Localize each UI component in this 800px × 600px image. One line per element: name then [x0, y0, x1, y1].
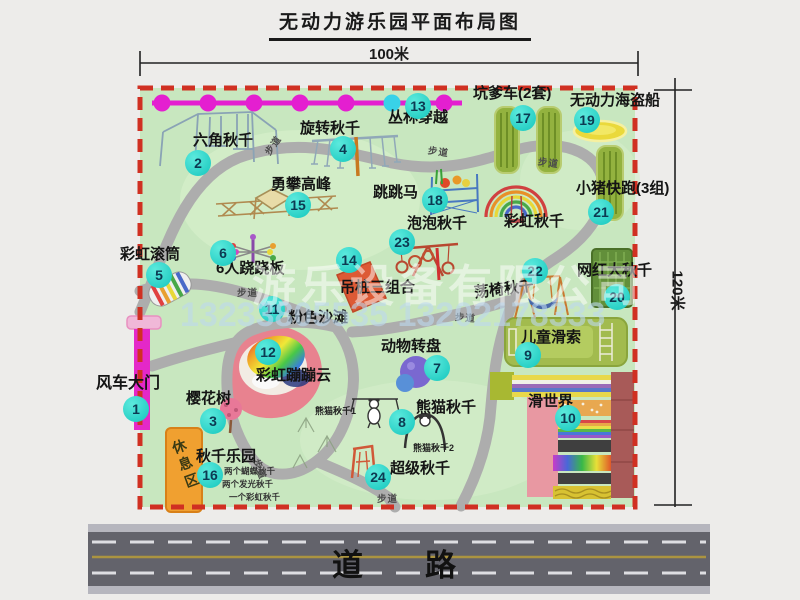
label-cherry-tree: 樱花树: [186, 391, 231, 407]
label-rainbow-roller: 彩虹滚筒: [120, 247, 180, 263]
trail-label-2: 步道: [427, 143, 450, 160]
swing-park-note-2: 两个发光秋千: [222, 478, 273, 490]
label-big-swing: 网红大秋千: [577, 263, 652, 279]
height-dimension-label: 120米: [668, 268, 689, 314]
label-panda-swing-1: 熊猫秋千1: [315, 404, 356, 417]
marker-9-kids-zipline: 9: [515, 342, 541, 368]
label-rotate-swing: 旋转秋千: [300, 121, 360, 137]
label-panda-swing-2: 熊猫秋千2: [413, 441, 454, 454]
marker-23-bubble-swing: 23: [389, 229, 415, 255]
marker-10-slide-world: 10: [555, 405, 581, 431]
marker-22-chair-swing: 22: [522, 258, 548, 284]
marker-19-pirate-ship: 19: [574, 107, 600, 133]
marker-16-swing-park: 16: [197, 462, 223, 488]
trail-label-7: 步道: [377, 491, 398, 505]
swing-park-note-3: 一个彩虹秋千: [229, 491, 280, 503]
label-rainbow-swing: 彩虹秋千: [504, 214, 564, 230]
trail-label-5: 步道: [454, 309, 476, 325]
marker-24-super-swing: 24: [365, 464, 391, 490]
marker-4-rotate-swing: 4: [330, 136, 356, 162]
marker-15-climb-peak: 15: [285, 192, 311, 218]
label-hex-swing: 六角秋千: [193, 133, 253, 149]
label-animal-turntable: 动物转盘: [381, 339, 441, 355]
label-super-swing: 超级秋千: [390, 461, 450, 477]
park-layout-plan: 无动力游乐园平面布局图 100米 120米 风车大门 六角秋千 樱花树 旋转秋千…: [0, 0, 800, 600]
marker-11-pink-beach: 11: [259, 296, 285, 322]
marker-12-rainbow-cloud: 12: [255, 339, 281, 365]
marker-6-seesaw6: 6: [210, 240, 236, 266]
label-piggy-run: 小猪快跑(3组): [576, 181, 669, 197]
trail-label-3: 步道: [537, 154, 560, 171]
marker-1-windmill-gate: 1: [123, 396, 149, 422]
marker-18-jump-horse: 18: [422, 187, 448, 213]
road-label: 道路: [332, 540, 518, 585]
marker-17-pit-car: 17: [510, 105, 536, 131]
label-rainbow-cloud: 彩虹蹦蹦云: [256, 368, 331, 384]
trail-label-4: 步道: [237, 285, 258, 299]
marker-5-rainbow-roller: 5: [146, 262, 172, 288]
marker-7-animal-turntable: 7: [424, 355, 450, 381]
width-dimension-label: 100米: [369, 43, 409, 64]
page-title: 无动力游乐园平面布局图: [269, 7, 531, 41]
marker-8-panda-swing: 8: [389, 409, 415, 435]
marker-2-hex-swing: 2: [185, 150, 211, 176]
marker-13-jungle-cross: 13: [405, 93, 431, 119]
label-windmill-gate: 风车大门: [96, 376, 160, 393]
label-pit-car: 坑爹车(2套): [473, 86, 551, 102]
label-climb-peak: 勇攀高峰: [271, 177, 331, 193]
label-bubble-swing: 泡泡秋千: [407, 216, 467, 232]
marker-20-big-swing: 20: [604, 284, 630, 310]
label-panda-swing: 熊猫秋千: [416, 400, 476, 416]
marker-21-piggy-run: 21: [588, 199, 614, 225]
label-pink-beach: 粉色沙滩: [288, 310, 348, 326]
marker-3-cherry-tree: 3: [200, 408, 226, 434]
marker-14-hanging-combo: 14: [336, 247, 362, 273]
label-jump-horse: 跳跳马: [373, 185, 418, 201]
label-hanging-combo: 吊桩三组合: [340, 280, 415, 296]
